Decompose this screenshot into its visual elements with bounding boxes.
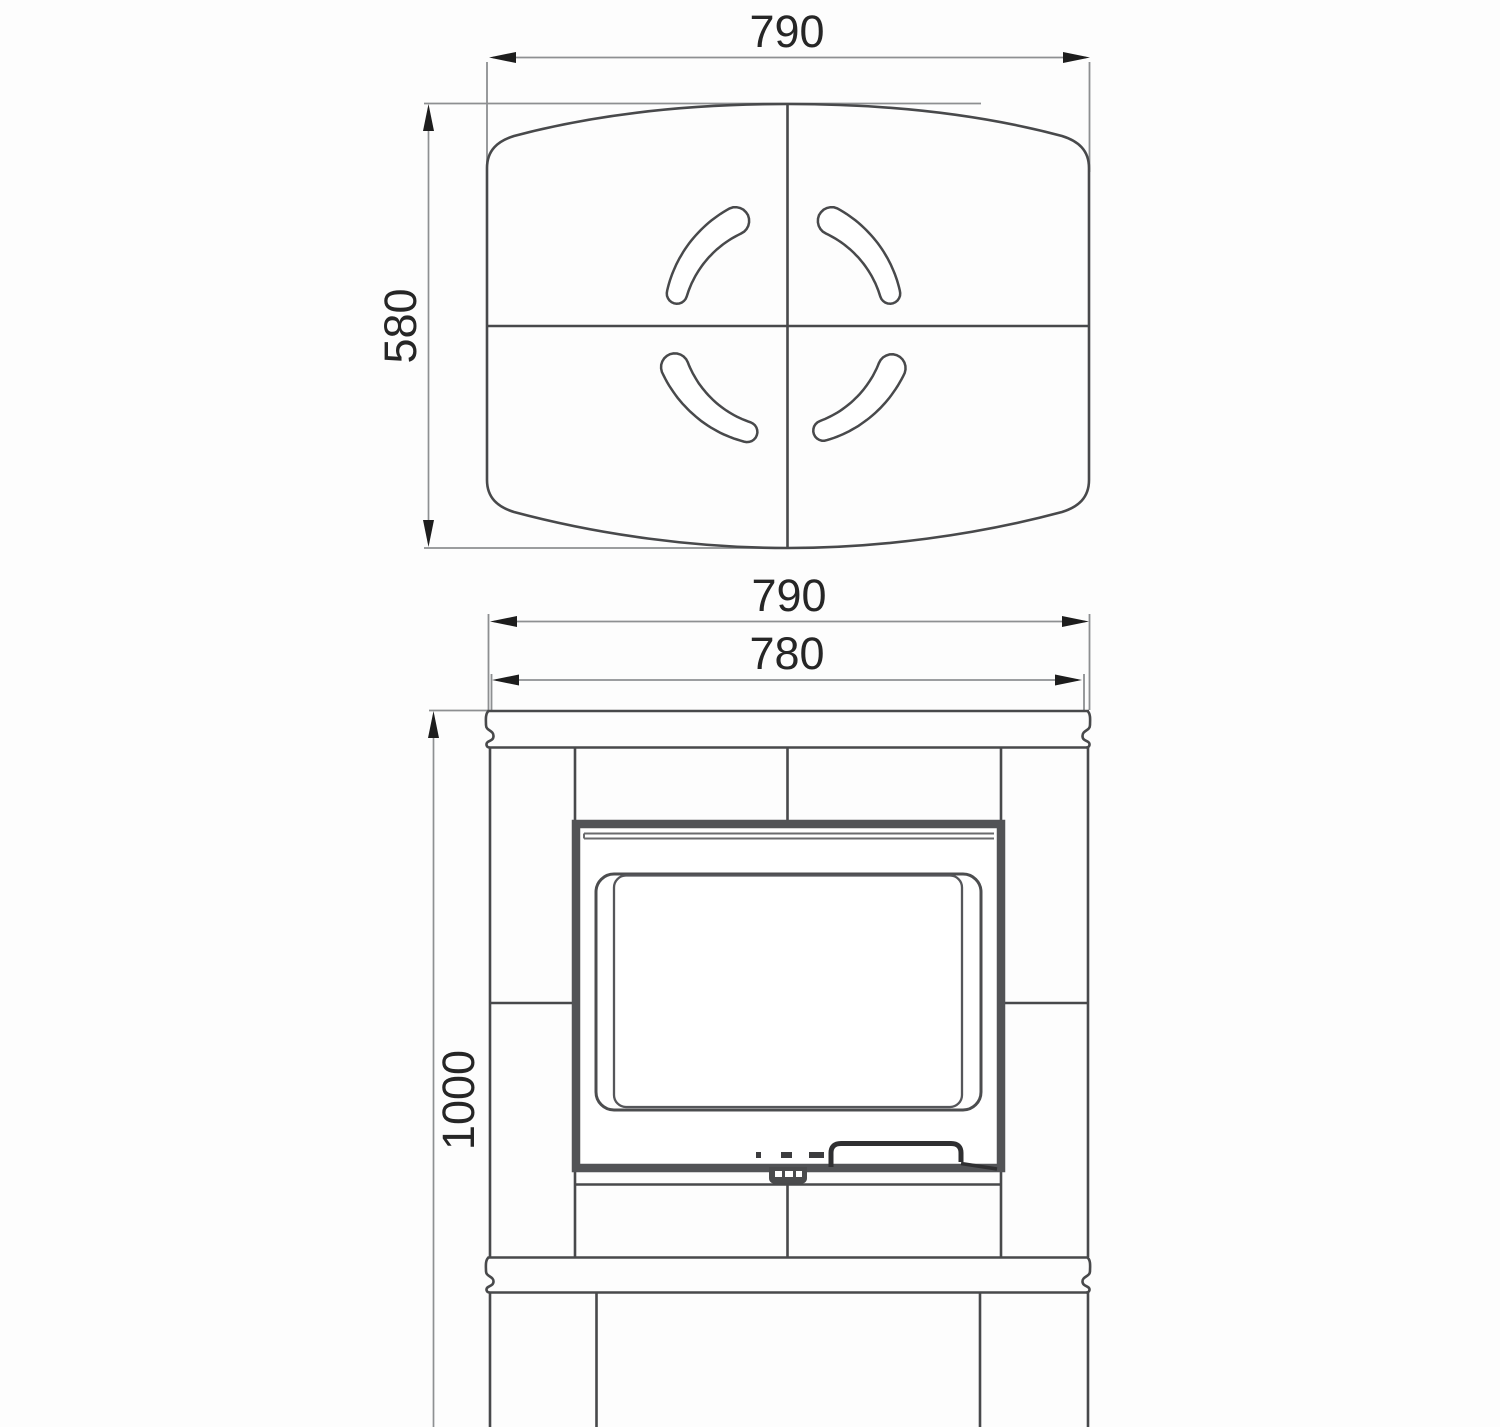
svg-text:1000: 1000 [433,1050,484,1150]
svg-text:790: 790 [749,6,824,57]
svg-text:580: 580 [375,288,426,363]
svg-text:780: 780 [749,628,824,679]
svg-text:790: 790 [751,570,826,621]
